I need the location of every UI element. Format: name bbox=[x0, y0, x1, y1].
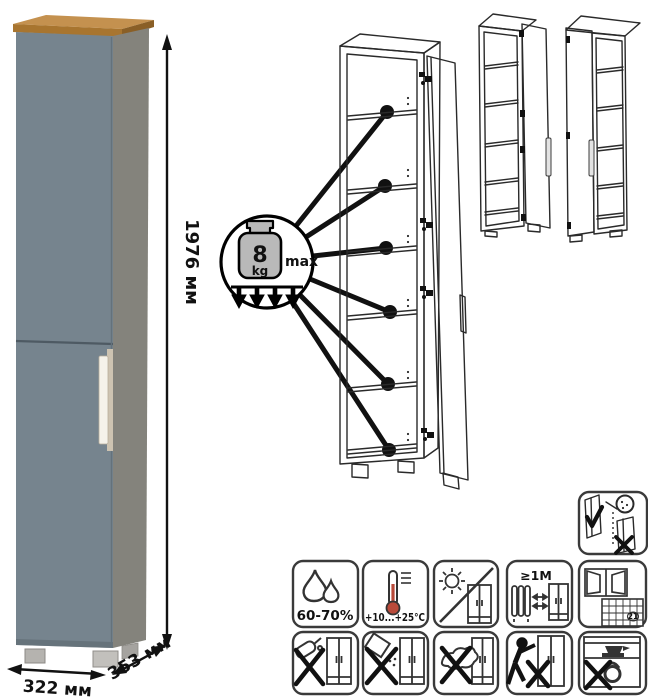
temperature-label: +10...+25°C bbox=[365, 611, 425, 624]
variant-shelves bbox=[485, 62, 518, 215]
width-label: 322 мм bbox=[22, 677, 92, 700]
no-abrasive-cleaners-icon bbox=[363, 632, 428, 694]
no-wet-wiping-icon bbox=[434, 632, 498, 694]
ventilation-icon: 21 bbox=[579, 561, 646, 627]
variant-door-handle bbox=[546, 138, 551, 176]
load-capacity-badge: 8 kg max bbox=[221, 216, 318, 308]
variant-right-hinged-door bbox=[479, 14, 551, 237]
door-adjustment-check-icon bbox=[579, 492, 647, 554]
cabinet-technical-drawing bbox=[340, 34, 468, 489]
wardrobe-glyph bbox=[327, 638, 351, 684]
humidity-label: 60-70% bbox=[297, 608, 354, 624]
cabinet-side-panel bbox=[113, 28, 149, 648]
no-water-cleaning-icon bbox=[293, 632, 358, 694]
no-dragging-icon bbox=[507, 632, 572, 694]
hinge-icon bbox=[419, 72, 432, 85]
product-render bbox=[13, 15, 154, 667]
hinge-icon bbox=[420, 286, 433, 299]
hinge-icons bbox=[419, 72, 434, 441]
cabinet-door-front bbox=[16, 32, 113, 648]
heat-source-distance-icon: ≥1М bbox=[507, 561, 572, 627]
shelf-pin-holes bbox=[407, 97, 409, 441]
product-sheet: 1976 мм 322 мм 353 мм bbox=[0, 0, 648, 700]
calendar-icon: 21 bbox=[602, 599, 643, 626]
variant-grey-door bbox=[522, 24, 550, 228]
dimension-height: 1976 мм bbox=[162, 34, 202, 650]
door-handle bbox=[99, 349, 113, 451]
open-window-icon bbox=[585, 569, 627, 596]
temperature-icon: +10...+25°C bbox=[363, 561, 428, 627]
shelf-callout-dots bbox=[378, 105, 397, 457]
height-label: 1976 мм bbox=[181, 219, 202, 305]
variant-grey-door bbox=[566, 28, 594, 236]
wardrobe-glyph bbox=[400, 638, 424, 684]
dimension-width: 322 мм bbox=[7, 664, 106, 700]
no-direct-sunlight-icon bbox=[434, 561, 498, 627]
hinge-icon bbox=[420, 218, 433, 231]
variant-door-handle bbox=[589, 140, 594, 176]
open-door bbox=[427, 56, 468, 489]
no-overloading-icon bbox=[579, 632, 646, 694]
load-qualifier: max bbox=[285, 254, 318, 270]
humidity-icon: 60-70% bbox=[293, 561, 358, 627]
load-unit: kg bbox=[252, 264, 269, 278]
hinge-icon bbox=[421, 428, 434, 441]
scene: 1976 мм 322 мм 353 мм bbox=[0, 0, 648, 700]
distance-label: ≥1М bbox=[520, 568, 552, 583]
variant-left-hinged-door bbox=[566, 16, 640, 242]
radiator-icon bbox=[512, 586, 530, 622]
wardrobe-glyph bbox=[549, 584, 568, 620]
variant-shelves bbox=[597, 67, 623, 219]
